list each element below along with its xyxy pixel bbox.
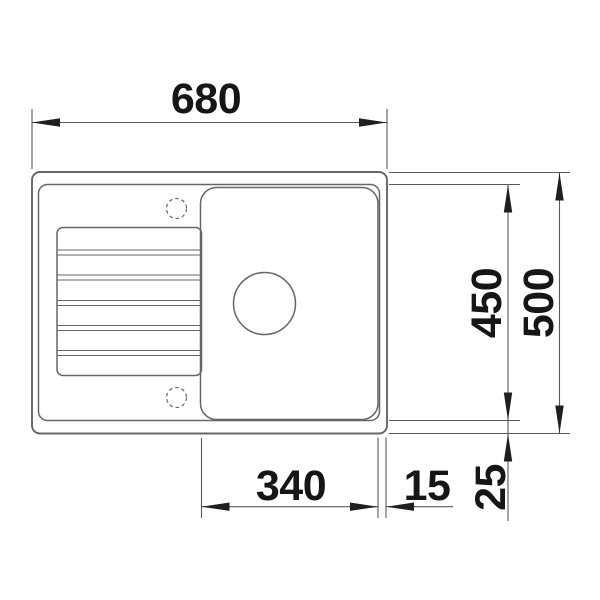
dim-label-overall-depth: 500	[515, 268, 563, 338]
dim-label-bowl-width: 340	[256, 462, 326, 510]
dim-rim-right: 15	[386, 438, 453, 519]
arrowhead-up	[555, 173, 563, 201]
arrowhead-left	[32, 118, 60, 126]
arrowhead-down	[504, 393, 512, 421]
tap-hole-top	[167, 199, 187, 219]
dim-label-rim-bottom: 25	[467, 464, 515, 511]
sink-plan-view	[32, 172, 387, 434]
dim-overall-width: 680	[32, 75, 387, 169]
technical-drawing-canvas: 680 500 450 25 340 15	[0, 0, 600, 600]
bowl	[201, 188, 379, 420]
tap-hole-bottom	[167, 388, 187, 408]
arrowhead-left	[202, 503, 230, 511]
arrowhead-up	[504, 434, 512, 462]
arrowhead-right	[350, 503, 378, 511]
arrowhead-up	[504, 185, 512, 213]
arrowhead-right	[359, 118, 387, 126]
dim-bowl-width: 340	[202, 438, 379, 519]
arrowhead-down	[555, 406, 563, 434]
sink-outer-edge	[32, 172, 387, 434]
sink-rim-inner-edge	[39, 185, 380, 421]
dim-label-rim-right: 15	[404, 462, 451, 510]
drain-hole	[234, 273, 296, 335]
dim-rim-bottom: 25	[467, 421, 515, 522]
dim-inner-depth: 450	[389, 185, 520, 421]
dim-label-inner-depth: 450	[463, 268, 511, 338]
drainboard-grooves	[58, 250, 202, 356]
sink-dimension-drawing: 680 500 450 25 340 15	[0, 0, 600, 600]
dim-label-overall-width: 680	[171, 75, 241, 123]
